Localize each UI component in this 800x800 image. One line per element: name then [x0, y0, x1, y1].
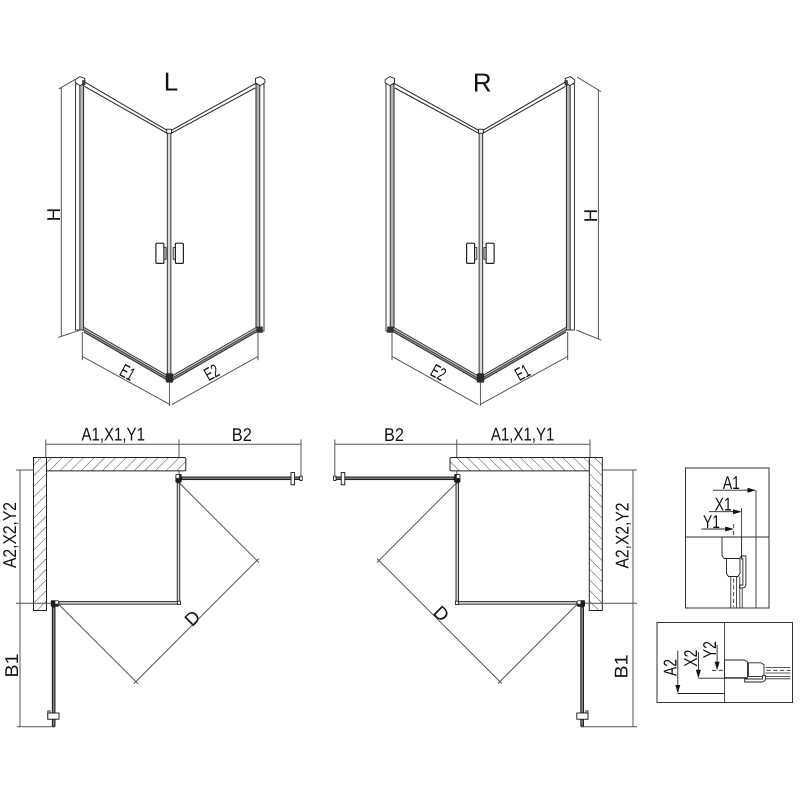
- svg-text:A1,X1,Y1: A1,X1,Y1: [491, 423, 555, 444]
- svg-text:L: L: [164, 67, 178, 97]
- svg-text:A2,X2,Y2: A2,X2,Y2: [611, 503, 632, 569]
- svg-text:H: H: [43, 208, 64, 221]
- svg-text:B1: B1: [1, 654, 22, 678]
- svg-text:H: H: [580, 209, 601, 222]
- svg-text:B2: B2: [384, 424, 404, 445]
- svg-text:A2,X2,Y2: A2,X2,Y2: [0, 502, 20, 568]
- svg-text:A1,X1,Y1: A1,X1,Y1: [81, 423, 145, 444]
- svg-text:R: R: [473, 67, 492, 97]
- svg-text:A2: A2: [659, 659, 680, 676]
- svg-text:B1: B1: [611, 655, 632, 679]
- svg-text:B2: B2: [232, 424, 252, 445]
